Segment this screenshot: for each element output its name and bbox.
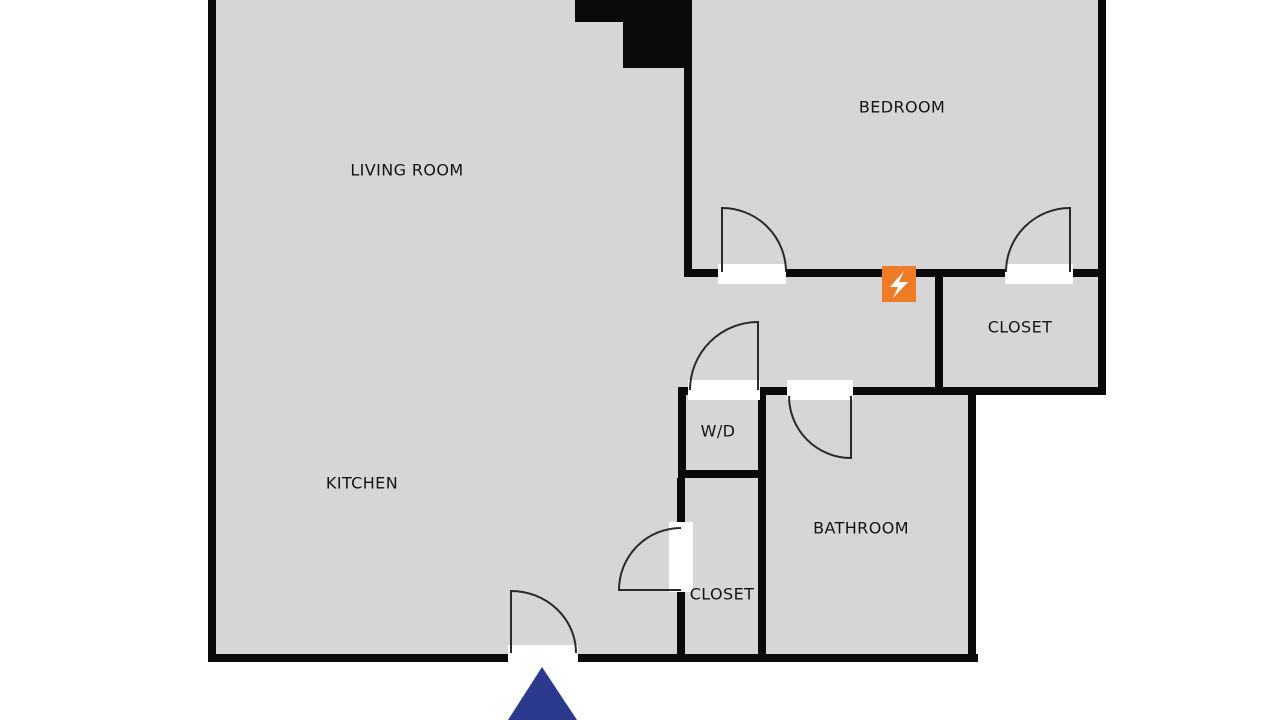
door-opening-hall-closet xyxy=(669,522,693,592)
wall-outer-bottom xyxy=(208,654,978,662)
door-opening-wd xyxy=(688,380,760,400)
wall-closet-bathroom xyxy=(758,387,766,662)
chimney-block-large xyxy=(623,0,692,68)
wall-wd-closet-divider xyxy=(678,470,766,478)
door-opening-entry xyxy=(508,645,578,665)
wall-outer-right xyxy=(1098,0,1106,393)
wall-outer-left xyxy=(208,0,216,662)
wall-bathroom-right xyxy=(968,387,976,662)
room-label-wd: W/D xyxy=(701,422,736,441)
wall-livingroom-bedroom xyxy=(684,60,692,274)
room-label-bedroom: BEDROOM xyxy=(859,98,945,117)
room-label-hall-closet: CLOSET xyxy=(690,585,755,604)
room-label-living-room: LIVING ROOM xyxy=(350,161,463,180)
chimney-block-small xyxy=(575,0,627,22)
floor-plan: LIVING ROOM BEDROOM CLOSET W/D BATHROOM … xyxy=(0,0,1280,720)
door-opening-bedroom-closet xyxy=(1005,264,1073,284)
wall-bedroom-closet-left xyxy=(935,269,943,395)
wall-wd-left xyxy=(678,387,686,478)
door-opening-bedroom xyxy=(718,264,786,284)
room-label-bedroom-closet: CLOSET xyxy=(988,318,1053,337)
electrical-panel-marker[interactable] xyxy=(882,266,916,302)
entry-viewpoint-marker[interactable] xyxy=(508,667,577,720)
floor-plan-canvas xyxy=(0,0,1280,720)
room-label-bathroom: BATHROOM xyxy=(813,519,909,538)
room-label-kitchen: KITCHEN xyxy=(326,474,398,493)
door-opening-bathroom xyxy=(787,380,853,400)
